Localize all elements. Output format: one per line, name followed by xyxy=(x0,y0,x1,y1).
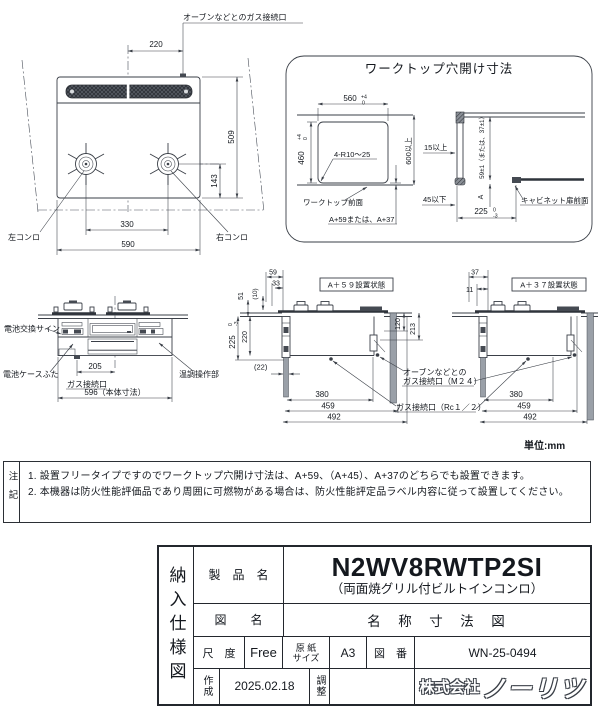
oven-gas-conn-line2: ガス接続口（M２４） xyxy=(403,376,482,386)
adjust-label-cell: 調整 xyxy=(310,669,330,704)
cabinet-front-label: キャビネット扉前面 xyxy=(521,195,589,205)
oven-gas-conn-line1: オーブンなどとの xyxy=(403,367,466,377)
created-label: 作成 xyxy=(199,675,214,697)
worktop-front-label: ワークトップ前面 xyxy=(303,197,363,207)
gas-port-front xyxy=(74,356,80,360)
dim-460-tol-lo: 0 xyxy=(303,137,309,140)
dim-225: 225 xyxy=(474,207,488,216)
dim-560-tol-lo: 0 xyxy=(362,101,365,107)
burner-grates xyxy=(52,301,150,314)
dim-225-tol-lo: -3 xyxy=(493,214,498,220)
side-view-a37: A＋３７設置状態 37 11 xyxy=(452,270,598,425)
a59-dim-225: 225 xyxy=(228,335,237,349)
dim-596: 596（本体寸法） xyxy=(84,387,145,397)
a59-dim-59: 59 xyxy=(269,270,277,277)
a59-top-profile xyxy=(294,302,382,312)
a59-dim-33: 33 xyxy=(272,281,280,288)
a59-oven-gas-port xyxy=(376,353,380,357)
a59-title: A＋５９設置状態 xyxy=(328,280,386,290)
a59-dim-213: 213 xyxy=(410,323,417,335)
a37-gas-port xyxy=(526,357,530,361)
right-burner-label: 右コンロ xyxy=(216,232,248,242)
a59-dim-380: 380 xyxy=(315,390,329,399)
max-45-label: 45以下 xyxy=(423,195,447,204)
connection-labels: オーブンなどとの ガス接続口（M２４） ガス接続口（Rc１／２） xyxy=(333,357,572,412)
a59-dim-225-tol-lo: -3 xyxy=(234,321,240,326)
doc-type-cell: 納入仕様図 xyxy=(159,547,194,704)
paper-size-label: 原 紙 サイズ xyxy=(283,637,330,668)
technical-drawing: オーブンなどとのガス接続口 xyxy=(0,0,600,458)
created-label-cell: 作成 xyxy=(194,669,220,704)
a59-dim-120: 120 xyxy=(395,318,402,330)
temp-control-label: 温調操作部 xyxy=(179,369,219,379)
a37-title: A＋３７設置状態 xyxy=(520,280,578,290)
gas-port-mark xyxy=(180,74,186,78)
a-options-label: A+59または、A+37 xyxy=(329,215,394,224)
a59-dim-10: (10) xyxy=(252,288,259,299)
scale-label: 尺 度 xyxy=(194,637,245,668)
a59-dim-51: 51 xyxy=(238,292,245,300)
scale-value: Free xyxy=(245,637,283,668)
note-item-1: 1. 設置フリータイプですのでワークトップ穴開け寸法は、A+59、（A+45）、… xyxy=(28,469,584,485)
dim-509: 509 xyxy=(227,130,236,144)
min-15-label: 15以上 xyxy=(424,143,448,152)
number-value: WN-25-0494 xyxy=(415,637,590,668)
dim-205: 205 xyxy=(88,362,102,371)
worktop-hole-box: ワークトップ穴開け寸法 560 +4 0 460 +4 0 4-R10～25 6… xyxy=(286,56,592,242)
dim-330: 330 xyxy=(120,220,134,229)
company-logo: 株式会社 ノーリツ xyxy=(415,669,590,704)
dim-460: 460 xyxy=(297,151,306,165)
spec-sheet-page: オーブンなどとのガス接続口 xyxy=(0,0,600,720)
product-value-cell: N2WV8RWTP2SI （両面焼グリル付ビルトインコンロ） xyxy=(284,547,590,603)
dim-590: 590 xyxy=(121,240,135,249)
company-name: ノーリツ xyxy=(482,669,586,704)
a59-dim-220: 220 xyxy=(242,331,249,343)
a59-gas-port xyxy=(329,357,333,361)
battery-sign-label: 電池交換サイン xyxy=(4,324,60,334)
a37-rear-pipe xyxy=(567,335,574,351)
a37-dim-11: 11 xyxy=(466,287,473,294)
a37-dim-459: 459 xyxy=(517,402,531,411)
adjust-label: 調整 xyxy=(312,675,327,697)
drawing-name: 名 称 寸 法 図 xyxy=(284,604,590,637)
worktop-box-title: ワークトップ穴開け寸法 xyxy=(365,61,514,76)
a37-oven-gas-port xyxy=(573,353,577,357)
adjust-value-cell xyxy=(330,669,415,704)
note-item-2: 2. 本機器は防火性能評価品であり周囲に可燃物がある場合は、防火性能評定品ラベル… xyxy=(28,485,584,501)
a59-dim-492: 492 xyxy=(327,413,341,422)
product-name: N2WV8RWTP2SI xyxy=(332,553,543,582)
dim-600min: 600以上 xyxy=(404,137,413,165)
dim-a-label: A xyxy=(478,194,485,199)
number-label: 図 番 xyxy=(367,637,415,668)
notes-box: 注記 1. 設置フリータイプですのでワークトップ穴開け寸法は、A+59、（A+4… xyxy=(3,461,591,523)
gas-conn-rc-label: ガス接続口（Rc１／２） xyxy=(396,402,486,412)
notes-header: 注記 xyxy=(5,471,19,508)
a37-dim-37: 37 xyxy=(471,270,479,277)
front-view: 電池交換サイン 電池ケースふた 温調操作部 205 ガス接続口 596（本体寸法… xyxy=(3,296,219,402)
oven-gas-port-label: オーブンなどとのガス接続口 xyxy=(183,12,286,22)
cabinet-door-section xyxy=(512,177,521,183)
a59-dim-459: 459 xyxy=(321,402,335,411)
unit-label: 単位:mm xyxy=(524,439,565,452)
paper-value: A3 xyxy=(330,637,367,668)
top-view: オーブンなどとのガス接続口 xyxy=(8,12,303,255)
created-value: 2025.02.18 xyxy=(220,669,310,704)
dim-59pm-label: 59±1（または、37±1） xyxy=(478,113,486,179)
a59-cabinet-front-panel xyxy=(284,358,289,398)
dim-560: 560 xyxy=(343,94,357,103)
paper-label-line1: 原 紙 xyxy=(293,643,320,653)
paper-label-line2: サイズ xyxy=(293,653,320,663)
dim-220: 220 xyxy=(149,40,163,49)
a59-rear-pipe xyxy=(370,335,377,351)
product-desc: （両面焼グリル付ビルトインコンロ） xyxy=(331,583,544,597)
a37-dim-492: 492 xyxy=(523,413,537,422)
a59-dim-22: (22) xyxy=(254,363,268,372)
left-burner-label: 左コンロ xyxy=(8,232,40,242)
worktop-section-hatch xyxy=(456,112,464,123)
product-label: 製 品 名 xyxy=(194,547,284,603)
drawing-label: 図 名 xyxy=(194,604,284,637)
a37-top-profile xyxy=(491,302,579,312)
a37-dim-380: 380 xyxy=(509,390,523,399)
notes-body: 1. 設置フリータイプですのでワークトップ穴開け寸法は、A+59、（A+45）、… xyxy=(20,462,590,522)
company-prefix: 株式会社 xyxy=(419,676,479,697)
doc-type: 納入仕様図 xyxy=(164,566,189,686)
battery-lid-label: 電池ケースふた xyxy=(3,369,59,379)
dim-143: 143 xyxy=(210,174,219,188)
notes-header-cell: 注記 xyxy=(4,462,20,522)
a37-rear-panel xyxy=(587,313,594,420)
side-view-a59: A＋５９設置状態 59 33 (10) xyxy=(228,270,423,425)
corner-radius-label: 4-R10～25 xyxy=(334,150,370,159)
title-block: 納入仕様図 製 品 名 N2WV8RWTP2SI （両面焼グリル付ビルトインコン… xyxy=(157,545,592,706)
